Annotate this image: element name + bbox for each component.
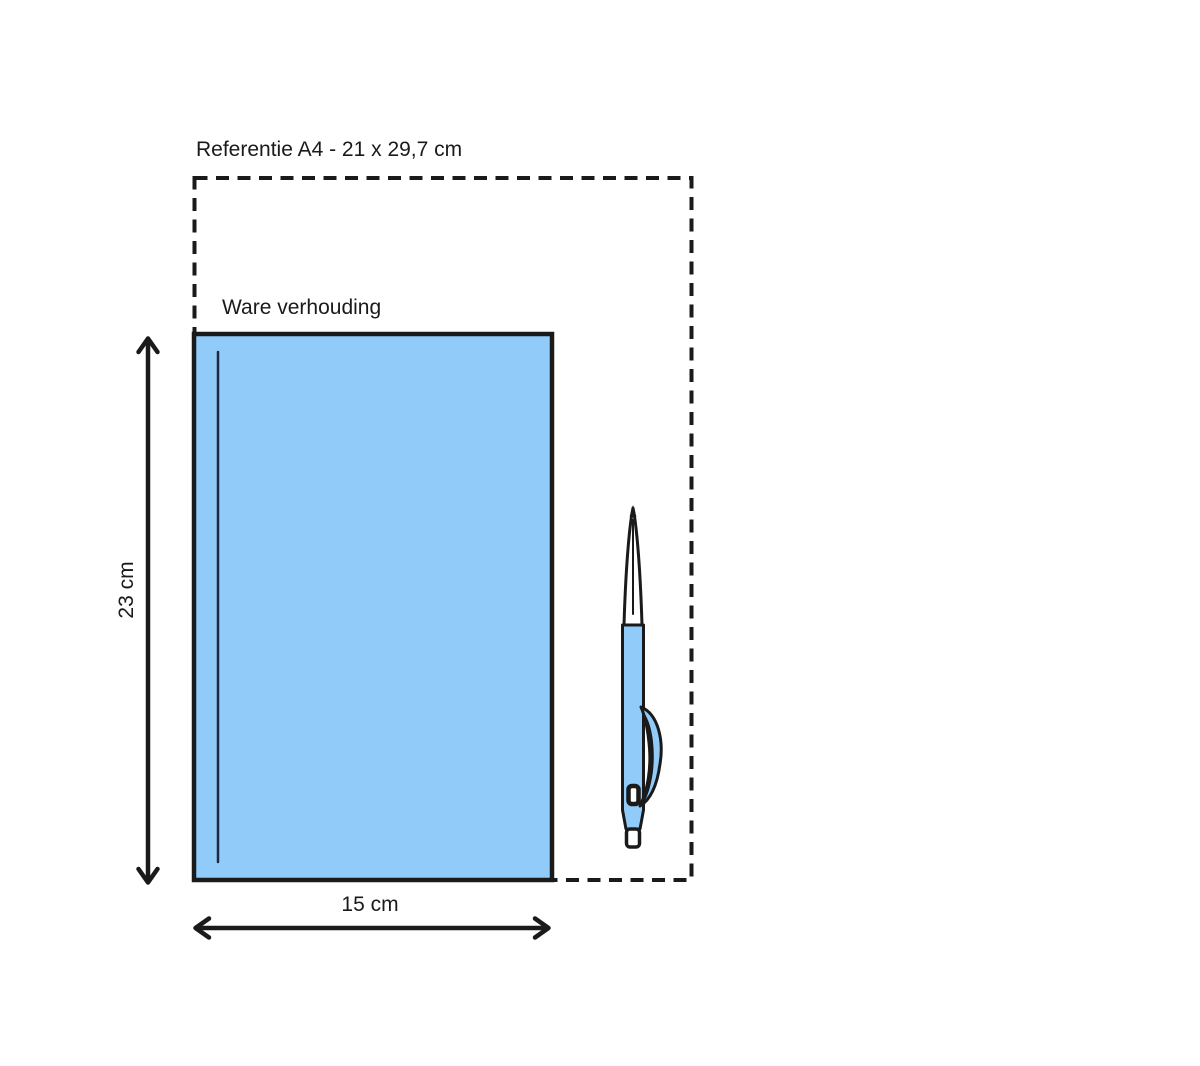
a4-reference-label: Referentie A4 - 21 x 29,7 cm	[196, 138, 462, 161]
height-dimension-label: 23 cm	[115, 561, 138, 618]
pen-clicker-button	[627, 829, 640, 847]
book-cover	[194, 334, 552, 880]
height-dimension-arrow	[139, 339, 158, 883]
pen-point	[630, 505, 637, 517]
book-illustration	[194, 334, 552, 880]
width-dimension-label: 15 cm	[341, 893, 398, 916]
pen-slot	[629, 786, 639, 804]
width-dimension-arrow	[196, 919, 549, 938]
diagram-svg: Referentie A4 - 21 x 29,7 cm Ware verhou…	[0, 0, 1200, 1066]
pen-illustration	[623, 505, 662, 847]
true-scale-label: Ware verhouding	[222, 296, 381, 319]
size-comparison-diagram: Referentie A4 - 21 x 29,7 cm Ware verhou…	[0, 0, 1200, 1066]
